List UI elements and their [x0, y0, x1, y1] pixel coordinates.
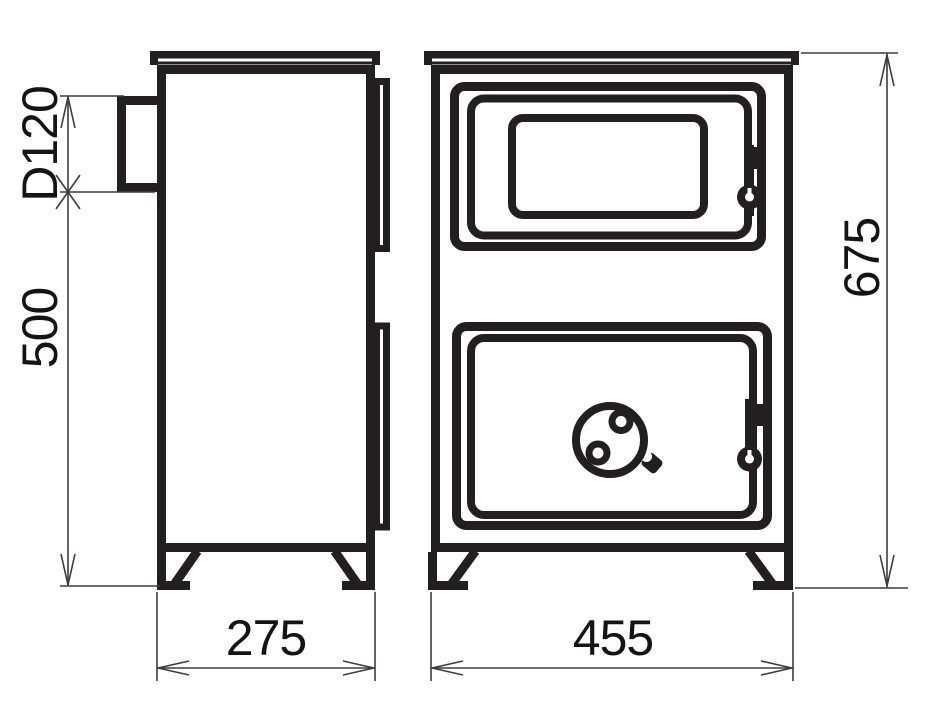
- dimension-depth: 275: [157, 592, 375, 681]
- side-top-plate-lip: [154, 62, 376, 65]
- air-knob-hole-lower: [589, 444, 607, 462]
- flue-collar: [122, 101, 162, 188]
- leg-inner-edge: [335, 551, 358, 584]
- dimension-label-height: 675: [834, 218, 890, 298]
- upper-door-window: [512, 118, 704, 215]
- dimension-label-width: 455: [573, 610, 653, 666]
- dimension-label-flue-diameter: D120: [12, 86, 68, 202]
- side-view: [122, 51, 387, 590]
- dimension-label-flue-height: 500: [12, 288, 68, 368]
- stove-technical-drawing: D120 500 275 455: [0, 0, 929, 714]
- front-leg-left: [428, 551, 476, 590]
- side-top-plate-cap-left: [150, 51, 158, 65]
- leg-inner-edge: [749, 551, 773, 584]
- side-top-plate-cap-right: [372, 51, 380, 65]
- front-top-plate: [424, 51, 799, 65]
- dimension-width: 455: [431, 592, 793, 681]
- leg-inner-edge: [175, 551, 198, 584]
- front-top-plate-cap-left: [424, 51, 432, 65]
- side-body: [162, 70, 371, 548]
- upper-door: [455, 87, 766, 247]
- side-leg-left: [157, 551, 198, 590]
- side-upper-door-edge: [377, 82, 387, 249]
- dimension-flue-height: 500: [12, 192, 160, 586]
- dimension-label-depth: 275: [226, 610, 306, 666]
- front-top-plate-cap-right: [791, 51, 799, 65]
- lower-door: [457, 327, 768, 526]
- leg-foot: [428, 581, 468, 590]
- front-view: [424, 51, 799, 590]
- side-top-plate: [150, 51, 380, 65]
- front-leg-right: [749, 551, 794, 590]
- side-top-plate-bar: [150, 51, 380, 59]
- side-lower-door-edge: [377, 326, 387, 527]
- latch-knob-slot: [748, 450, 752, 456]
- latch-catch: [754, 147, 765, 169]
- front-top-plate-bar: [424, 51, 799, 59]
- latch-knob-slot: [748, 188, 752, 194]
- leg-inner-edge: [452, 551, 476, 584]
- front-top-plate-lip: [428, 62, 795, 65]
- dimension-height: 675: [795, 53, 908, 588]
- drawing-sheet: D120 500 275 455: [0, 0, 929, 714]
- side-leg-right: [335, 551, 376, 590]
- air-knob-hole-upper: [612, 413, 630, 431]
- latch-catch: [754, 404, 765, 426]
